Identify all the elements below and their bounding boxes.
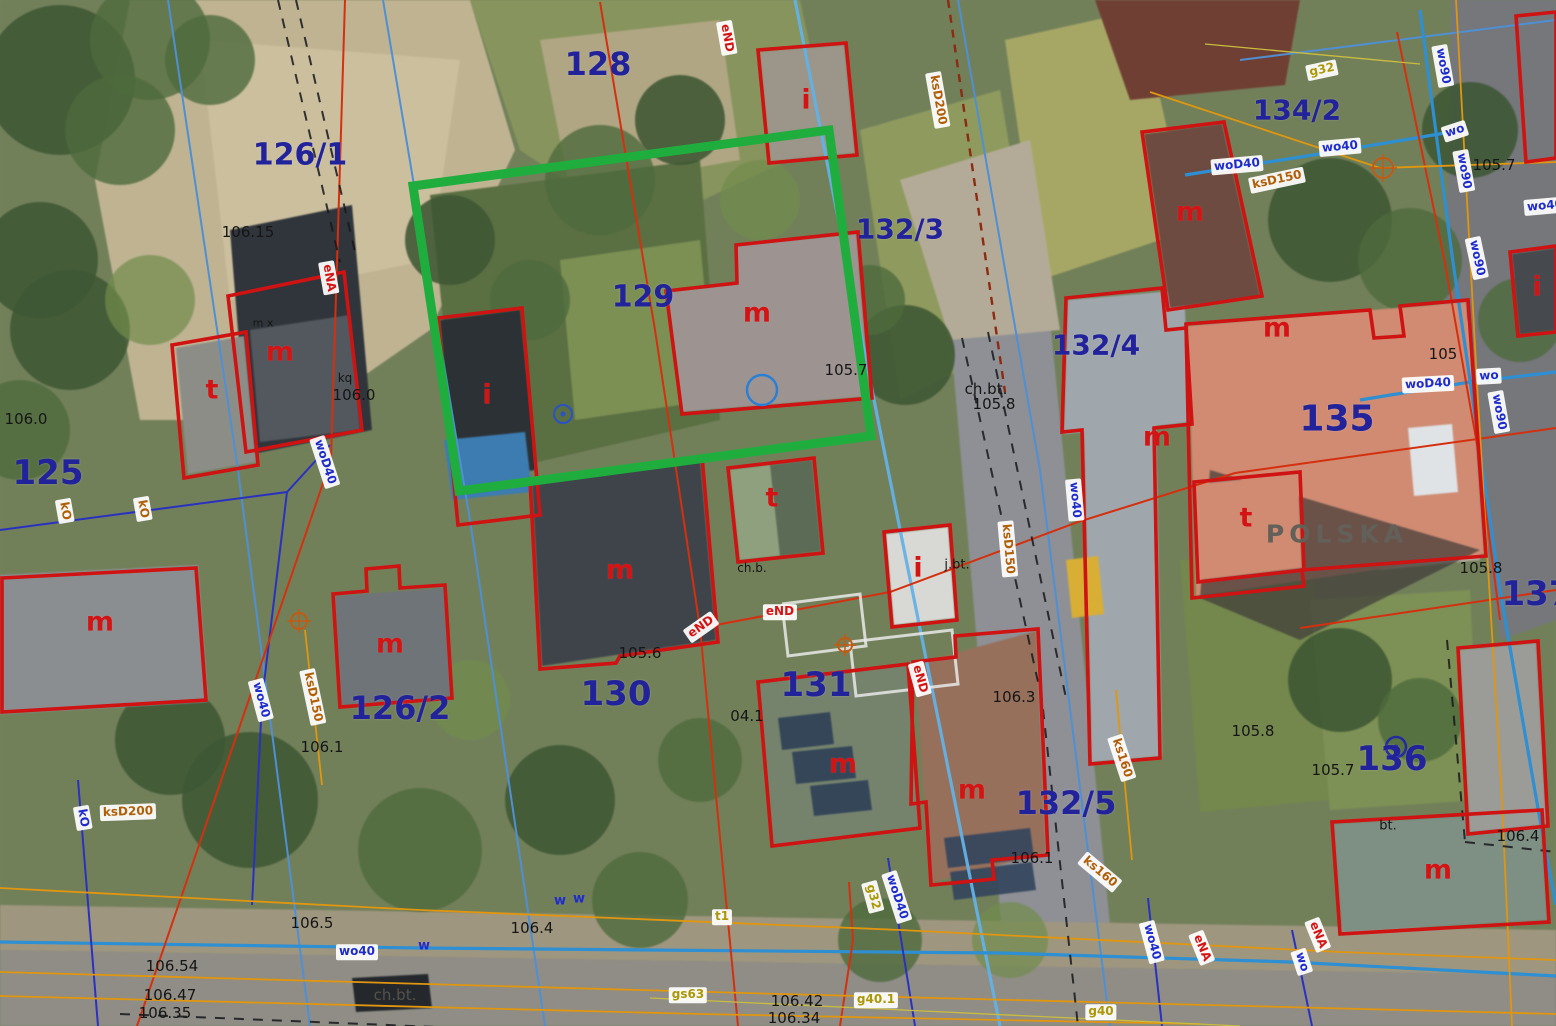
map-line-roadDash	[120, 1014, 850, 1026]
building-outline	[2, 568, 206, 712]
survey-point-icon	[834, 634, 856, 656]
building-outline	[333, 566, 452, 707]
map-line-water	[1360, 372, 1556, 400]
map-line-water	[0, 942, 1556, 976]
map-line-darkblue	[252, 492, 287, 905]
map-viewport[interactable]: 126/1128129132/3134/2132/4135125126/2130…	[0, 0, 1556, 1026]
map-line-gas	[305, 630, 322, 785]
survey-point-icon	[1369, 154, 1397, 182]
manhole-icon	[1386, 737, 1406, 757]
map-line-parcel-line	[383, 0, 545, 1026]
map-line-water	[1185, 133, 1445, 175]
building-outlines	[2, 12, 1556, 934]
building-outline	[884, 525, 957, 627]
map-line-roadDash	[296, 0, 356, 256]
map-line-power	[840, 882, 853, 1026]
building-outline	[1194, 472, 1304, 582]
building-outline	[728, 458, 823, 562]
building-outline	[1142, 122, 1262, 310]
map-line-darkblue	[0, 445, 330, 530]
building-outline	[1516, 12, 1556, 162]
map-line-gas	[1150, 92, 1556, 168]
utility-lines	[0, 0, 1556, 1026]
building-outline	[172, 332, 258, 478]
map-line-gas	[1116, 690, 1132, 860]
map-line-roadDash	[278, 0, 340, 262]
well-circle-icon	[747, 375, 777, 405]
building-outline	[911, 629, 1048, 885]
building-outline	[1062, 288, 1192, 764]
map-line-gasThin	[1205, 44, 1420, 64]
map-line-darkblue	[78, 780, 98, 1026]
survey-point-icon	[287, 609, 311, 633]
building-outline	[666, 232, 872, 414]
map-line-darkblue	[1148, 898, 1162, 1026]
map-line-whiteMark	[782, 594, 866, 656]
building-outline	[1510, 246, 1556, 336]
map-line-water	[1420, 10, 1556, 905]
map-line-roadDash	[988, 332, 1066, 698]
selected-parcel-highlight[interactable]	[413, 130, 871, 491]
map-line-parcel-line	[958, 0, 1110, 1026]
map-line-gas	[0, 972, 1556, 1014]
building-outline	[1186, 300, 1486, 598]
map-line-sewerDash	[948, 0, 1005, 392]
map-line-darkblue	[1292, 930, 1312, 1026]
map-line-power	[1300, 590, 1556, 628]
map-line-gas	[0, 888, 1556, 960]
map-line-darkblue	[888, 858, 915, 1026]
cadastral-overlay	[0, 0, 1556, 1026]
manhole-icon	[554, 405, 572, 423]
